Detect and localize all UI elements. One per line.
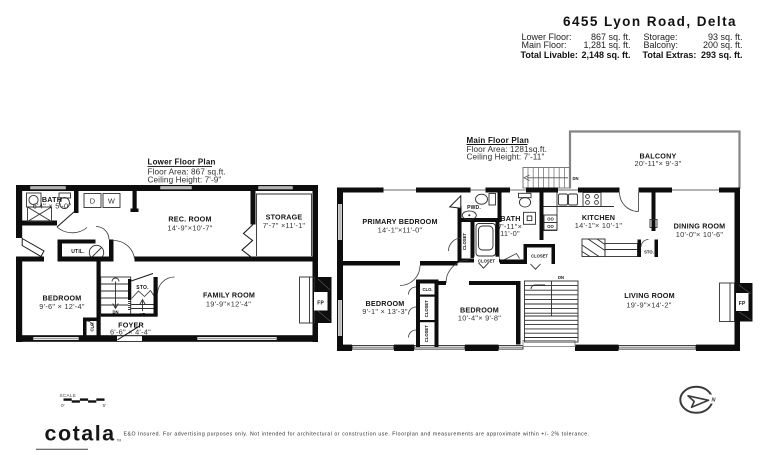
svg-text:DN: DN — [558, 275, 564, 280]
svg-text:Main Floor Plan: Main Floor Plan — [467, 136, 530, 145]
svg-text:UTIL.: UTIL. — [71, 249, 85, 255]
svg-text:14'-9"×10'-7": 14'-9"×10'-7" — [167, 224, 212, 233]
svg-text:1,281 sq. ft.: 1,281 sq. ft. — [583, 40, 630, 50]
svg-text:TM: TM — [117, 439, 122, 443]
svg-text:Ceiling Height: 7'-11": Ceiling Height: 7'-11" — [467, 153, 545, 162]
svg-text:Ceiling Height: 7'-9": Ceiling Height: 7'-9" — [148, 176, 222, 185]
svg-text:7'-7" ×11'-1": 7'-7" ×11'-1" — [263, 221, 306, 230]
svg-text:6'4" × 5'-0": 6'4" × 5'-0" — [33, 202, 72, 211]
svg-text:PWD.: PWD. — [467, 205, 481, 211]
svg-text:CLOSET: CLOSET — [424, 300, 429, 317]
svg-text:STO.: STO. — [644, 250, 654, 255]
svg-text:FP: FP — [739, 301, 746, 307]
svg-text:5': 5' — [103, 403, 107, 409]
svg-text:14'-1"× 10'-1": 14'-1"× 10'-1" — [575, 221, 623, 230]
svg-text:STO.: STO. — [136, 285, 149, 291]
svg-text:REC. ROOM: REC. ROOM — [168, 215, 211, 224]
svg-text:cotala: cotala — [45, 421, 116, 445]
svg-text:Lower Floor Plan: Lower Floor Plan — [148, 158, 216, 167]
svg-text:9'-1" × 13'-3": 9'-1" × 13'-3" — [362, 307, 408, 316]
svg-text:SCALE: SCALE — [60, 393, 77, 398]
svg-text:20'-11"× 9'-3": 20'-11"× 9'-3" — [635, 159, 682, 168]
svg-text:Total Extras:: Total Extras: — [643, 50, 697, 60]
svg-text:2,148 sq. ft.: 2,148 sq. ft. — [581, 50, 630, 60]
svg-text:CLOSET: CLOSET — [462, 233, 467, 250]
svg-text:CLO.: CLO. — [422, 287, 432, 292]
svg-text:11'-0": 11'-0" — [500, 229, 520, 238]
svg-text:19'-9"×12'-4": 19'-9"×12'-4" — [206, 300, 251, 309]
svg-text:10'-0"× 10'-6": 10'-0"× 10'-6" — [676, 230, 724, 239]
svg-text:FP: FP — [317, 301, 324, 307]
svg-text:293 sq. ft.: 293 sq. ft. — [701, 50, 743, 60]
svg-text:FAMILY ROOM: FAMILY ROOM — [203, 291, 255, 300]
svg-text:CLOSET: CLOSET — [424, 325, 429, 342]
svg-text:LIVING ROOM: LIVING ROOM — [624, 291, 675, 300]
svg-text:19'-9"×14'-2": 19'-9"×14'-2" — [626, 301, 671, 310]
svg-text:OO: OO — [547, 217, 554, 222]
svg-text:Total Livable:: Total Livable: — [521, 50, 578, 60]
svg-text:E&O Insured. For advertising p: E&O Insured. For advertising purposes on… — [124, 431, 590, 437]
svg-text:OO: OO — [547, 224, 554, 229]
svg-text:0': 0' — [61, 403, 65, 409]
svg-text:9'-6" × 12'-4": 9'-6" × 12'-4" — [39, 302, 85, 311]
svg-text:Main Floor:: Main Floor: — [522, 40, 567, 50]
svg-text:W: W — [108, 196, 115, 205]
svg-text:14'-1"×11'-0": 14'-1"×11'-0" — [378, 225, 423, 234]
svg-text:CLOSET: CLOSET — [531, 254, 548, 259]
svg-text:200 sq. ft.: 200 sq. ft. — [703, 40, 743, 50]
svg-text:10'-4"× 9'-8": 10'-4"× 9'-8" — [458, 313, 501, 322]
svg-text:6455 Lyon Road, Delta: 6455 Lyon Road, Delta — [563, 14, 737, 29]
svg-text:Balcony:: Balcony: — [644, 40, 679, 50]
svg-text:CLOSET: CLOSET — [478, 259, 495, 264]
svg-text:D: D — [90, 196, 96, 205]
svg-text:DN: DN — [572, 176, 578, 181]
